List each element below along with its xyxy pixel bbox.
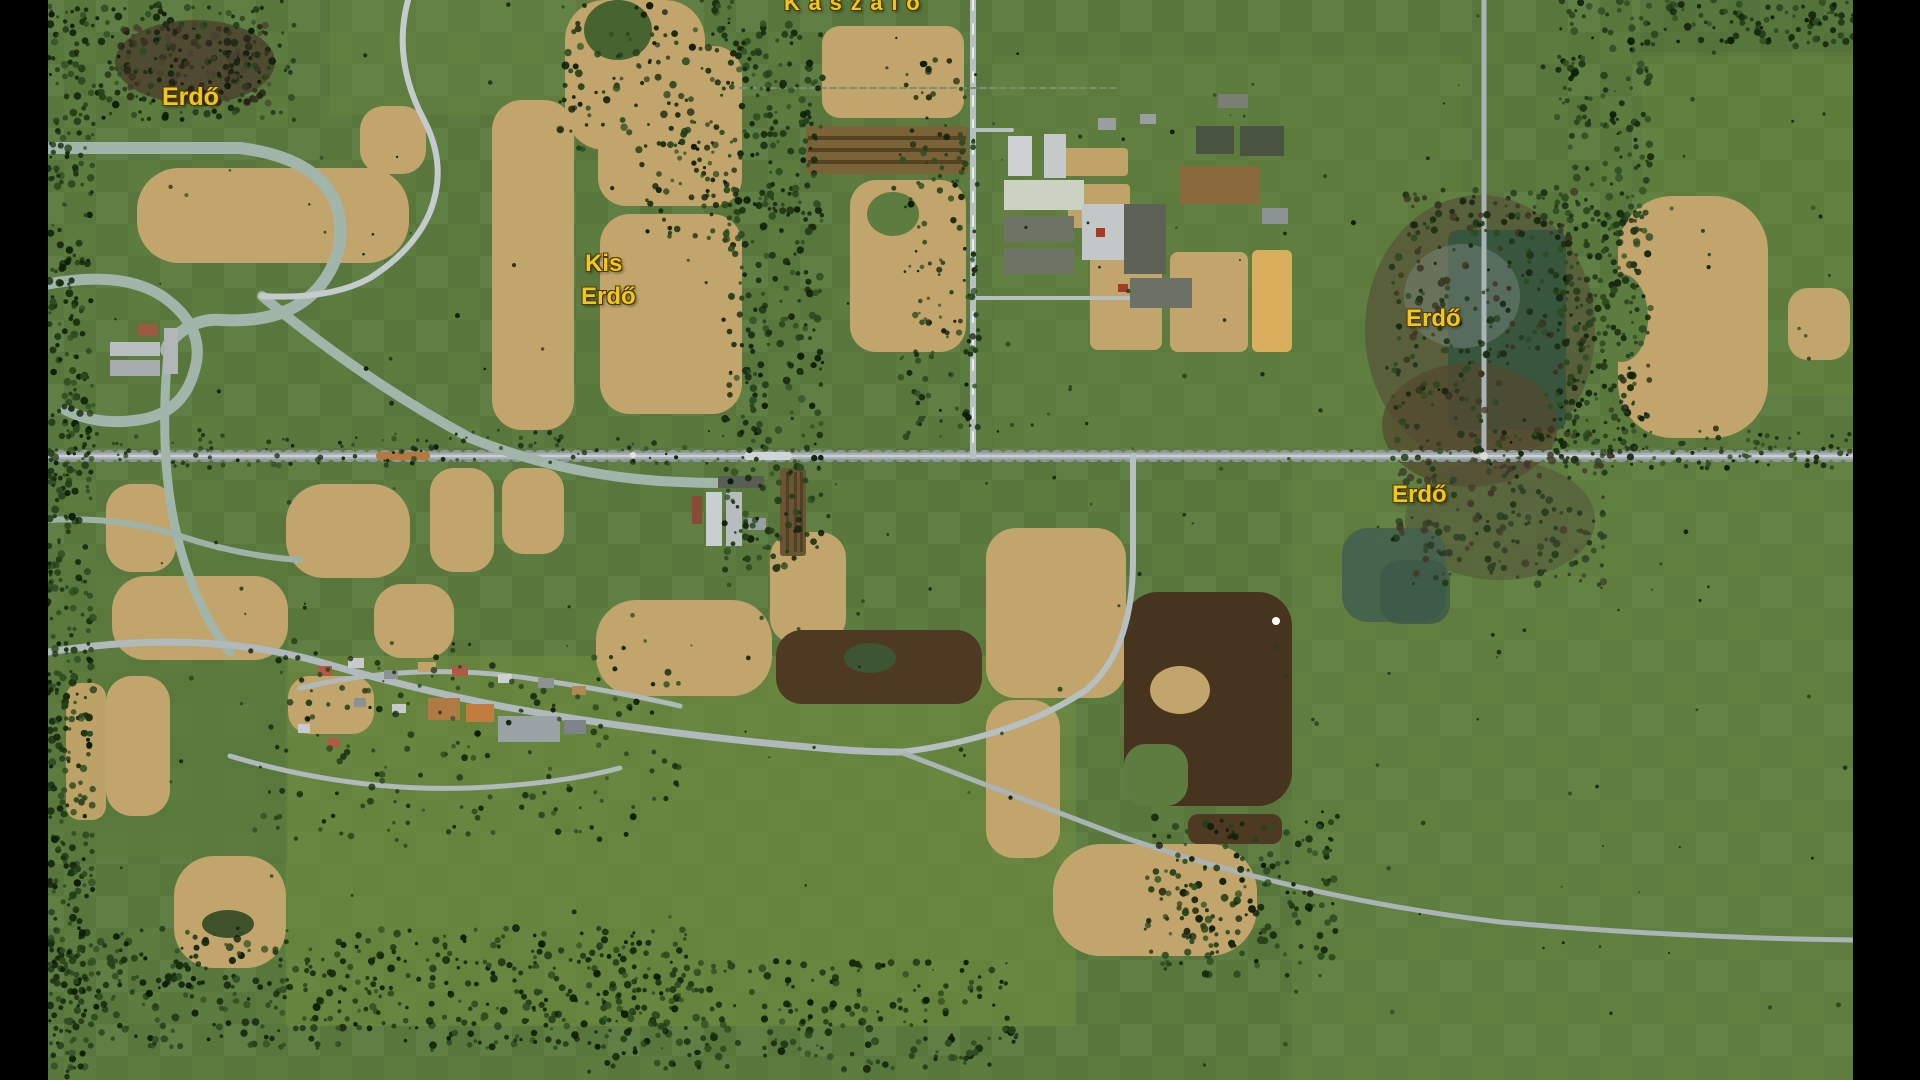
map-canvas	[0, 0, 1920, 1080]
pda-map-viewport[interactable]: K a s z á l óErdőKisErdőErdőErdő	[0, 0, 1920, 1080]
game-screen: K a s z á l óErdőKisErdőErdőErdő	[0, 0, 1920, 1080]
